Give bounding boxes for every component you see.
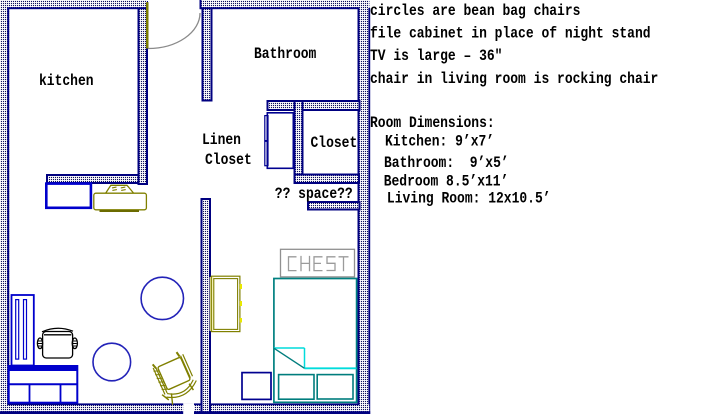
svg-text:TV is large – 36": TV is large – 36" — [370, 48, 502, 65]
svg-text:Kitchen: 9’x7’: Kitchen: 9’x7’ — [385, 133, 494, 150]
svg-text:Closet: Closet — [205, 152, 252, 169]
svg-text:Bathroom: Bathroom — [254, 46, 317, 63]
svg-text:Room Dimensions:: Room Dimensions: — [370, 115, 495, 132]
svg-text:Bathroom: 9’x5’: Bathroom: 9’x5’ — [384, 155, 509, 172]
svg-text:?? space??: ?? space?? — [275, 186, 353, 203]
svg-text:Living Room: 12x10.5’: Living Room: 12x10.5’ — [387, 191, 551, 208]
svg-text:Bedroom 8.5’x11’: Bedroom 8.5’x11’ — [384, 174, 509, 191]
svg-text:chair in living room is rockin: chair in living room is rocking chair — [370, 71, 658, 88]
svg-text:circles are bean bag chairs: circles are bean bag chairs — [370, 3, 580, 20]
svg-text:file cabinet in place of night: file cabinet in place of night stand — [370, 26, 651, 43]
svg-text:Linen: Linen — [202, 132, 241, 149]
svg-text:kitchen: kitchen — [39, 73, 94, 90]
svg-text:Closet: Closet — [311, 135, 358, 152]
